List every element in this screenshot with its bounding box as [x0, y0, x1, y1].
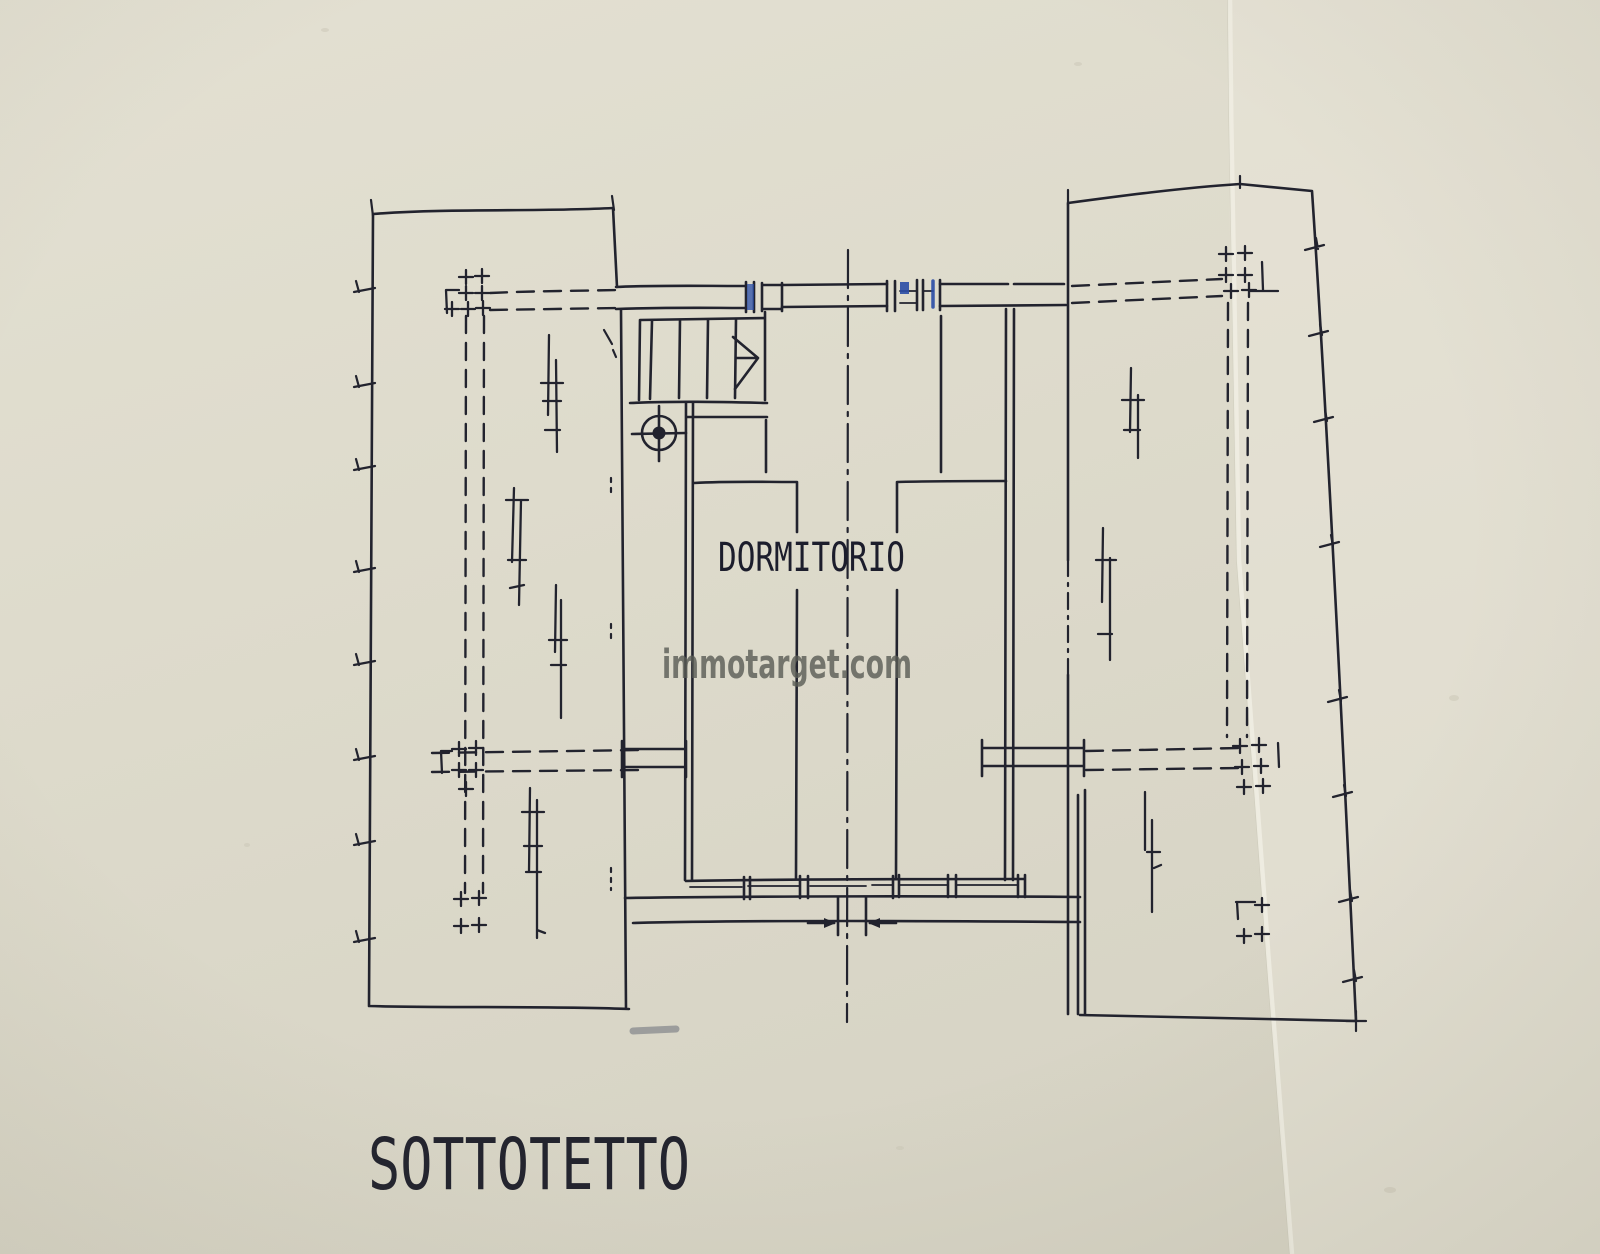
center-axis-line [847, 250, 848, 1022]
scanned-floor-plan-page: DORMITORIO immotarget.com SOTTOTETTO [0, 0, 1600, 1254]
floor-plan-scan: DORMITORIO immotarget.com SOTTOTETTO [0, 0, 1600, 1254]
room-label: DORMITORIO [718, 533, 905, 580]
plan-title: SOTTOTETTO [368, 1123, 690, 1206]
pencil-mark [633, 1029, 676, 1031]
watermark-text: immotarget.com [662, 642, 912, 688]
